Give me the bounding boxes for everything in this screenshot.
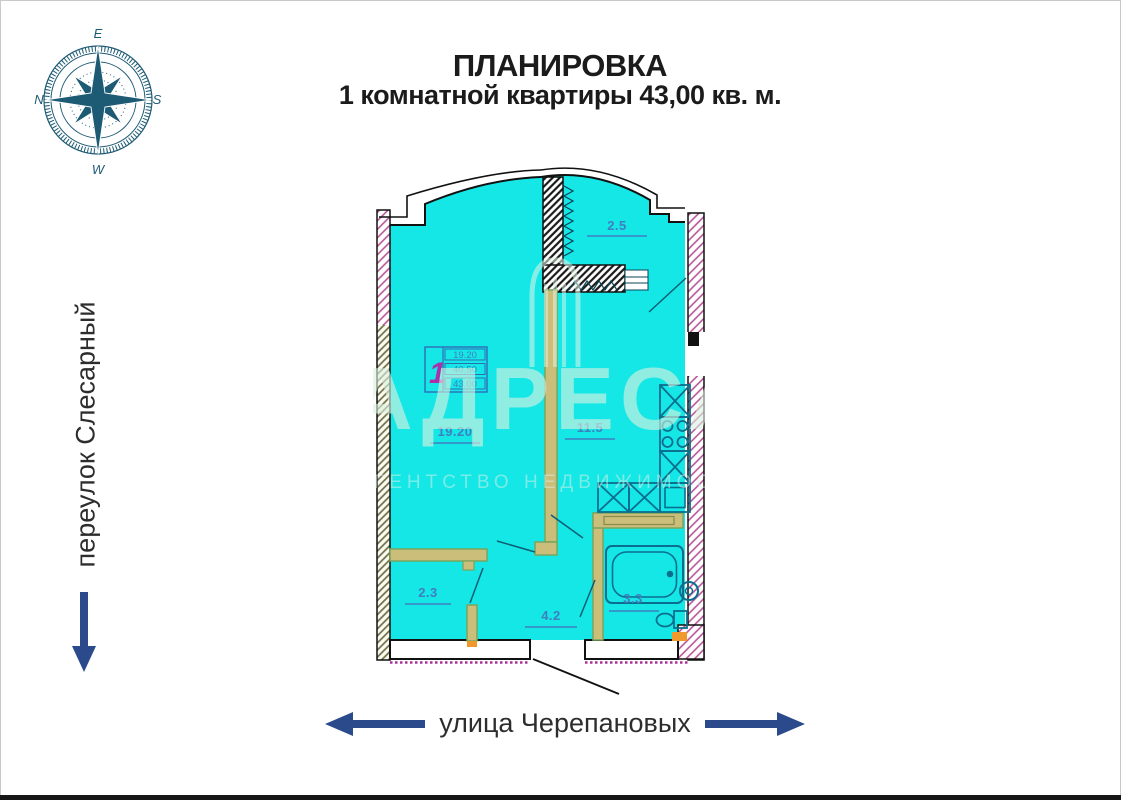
wall-bottom-left [390,640,530,659]
compass-east-label: E [94,26,103,41]
street-label-left: переулок Слесарный [71,275,102,595]
entrance-door-swing [533,659,619,694]
room-label-hallway: 4.2 [541,608,561,623]
room-label-closet: 2.3 [418,585,438,600]
floorplan-drawing: 1 19.20 40.50 43.00 2.5 19.20 11.5 2.3 4… [373,158,705,700]
room-label-balcony: 2.5 [607,218,627,233]
title-line-1: ПЛАНИРОВКА [290,50,830,81]
compass-rose-icon: E S W N [33,12,163,180]
arrow-down-icon [72,592,96,672]
wall-left-lower [377,325,390,660]
street-label-bottom: улица Черепановых [439,708,691,739]
title-line-2: 1 комнатной квартиры 43,00 кв. м. [290,81,830,111]
partition-central [545,290,557,542]
compass-west-label: W [92,162,106,177]
apartment-floor-area [390,175,685,640]
wall-balcony-horizontal [543,265,625,292]
room-label-kitchen: 11.5 [577,420,604,435]
partition-closet [390,549,487,561]
arrow-left-icon [325,712,425,736]
partition-hall-stub [467,605,477,641]
partition-bathroom-left [593,513,603,640]
floorplan-page: E S W N ПЛАНИРОВКА 1 комнатной квартиры … [0,0,1121,800]
balcony-unit-box [625,270,648,290]
page-title: ПЛАНИРОВКА 1 комнатной квартиры 43,00 кв… [290,50,830,111]
bathroom-threshold [672,632,687,641]
info-living-area: 19.20 [453,350,477,361]
wall-right-vent-box [688,332,699,346]
compass-north-label: N [34,92,44,107]
info-total-area: 43.00 [453,379,477,390]
arrow-right-icon [705,712,805,736]
wall-left [377,210,390,325]
info-rooms-count: 1 [429,357,446,390]
info-area-no-balcony: 40.50 [453,365,477,376]
wall-bottom-right [585,640,678,659]
page-bottom-edge [0,795,1121,800]
compass-south-label: S [153,92,162,107]
room-label-living: 19.20 [437,424,472,439]
partition-bathroom-top [593,513,683,528]
room-label-bathroom: 3.3 [623,591,643,606]
wall-corner-hatch [678,625,704,659]
street-label-bottom-row: улица Черепановых [325,708,805,739]
